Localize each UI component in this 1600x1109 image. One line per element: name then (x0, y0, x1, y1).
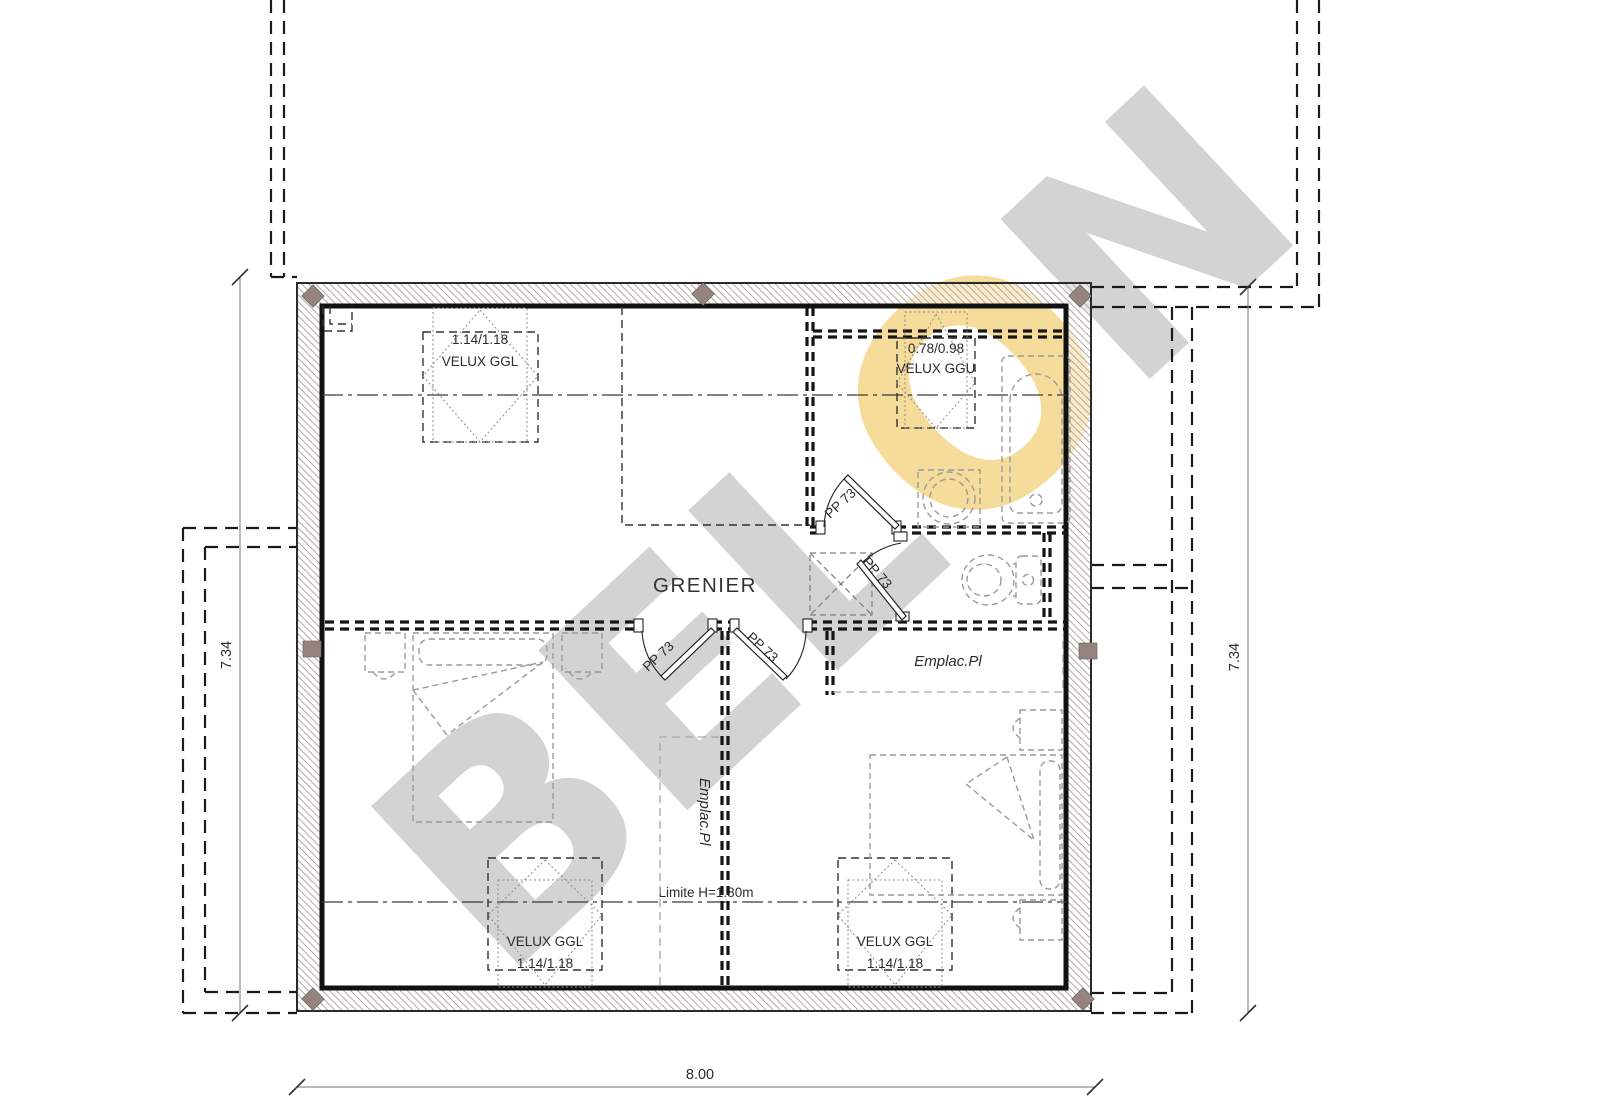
velux-bottom-right-size: 1.14/1.18 (867, 956, 923, 971)
velux-bottom-left-model: VELUX GGL (507, 934, 584, 949)
velux-top-left: 1.14/1.18 VELUX GGL (423, 308, 538, 442)
dimension-bottom: 8.00 (289, 1067, 1103, 1095)
closet-upper-label: Emplac.Pl (914, 653, 982, 670)
dimension-left: 7.34 (219, 269, 248, 1021)
bed-right (870, 710, 1062, 940)
dimension-bottom-value: 8.00 (686, 1067, 714, 1083)
velux-bottom-right: VELUX GGL 1.14/1.18 (838, 858, 952, 987)
height-limit-label: Limite H=1.80m (659, 885, 754, 900)
room-label: GRENIER (653, 574, 757, 597)
brand-watermark: BEL O N (310, 23, 1361, 1037)
post-marker-left-mid (303, 641, 321, 657)
dimension-left-value: 7.34 (219, 641, 235, 669)
stair-notch-outline (323, 306, 352, 331)
floor-plan-page: BEL O N (0, 0, 1600, 1109)
velux-bottom-right-model: VELUX GGL (857, 934, 934, 949)
velux-top-left-size: 1.14/1.18 (452, 332, 508, 347)
post-marker-right-mid (1079, 643, 1097, 659)
closet-lower-label: Emplac.Pl (696, 778, 713, 846)
velux-top-right-model: VELUX GGU (897, 361, 976, 376)
velux-bottom-left-size: 1.14/1.18 (517, 956, 573, 971)
velux-top-left-model: VELUX GGL (442, 354, 519, 369)
floor-plan-drawing: BEL O N (0, 0, 1600, 1109)
stair-notch-inner (330, 306, 352, 324)
velux-top-right-size: 0.78/0.98 (908, 341, 964, 356)
dimension-right-value: 7.34 (1227, 643, 1243, 671)
